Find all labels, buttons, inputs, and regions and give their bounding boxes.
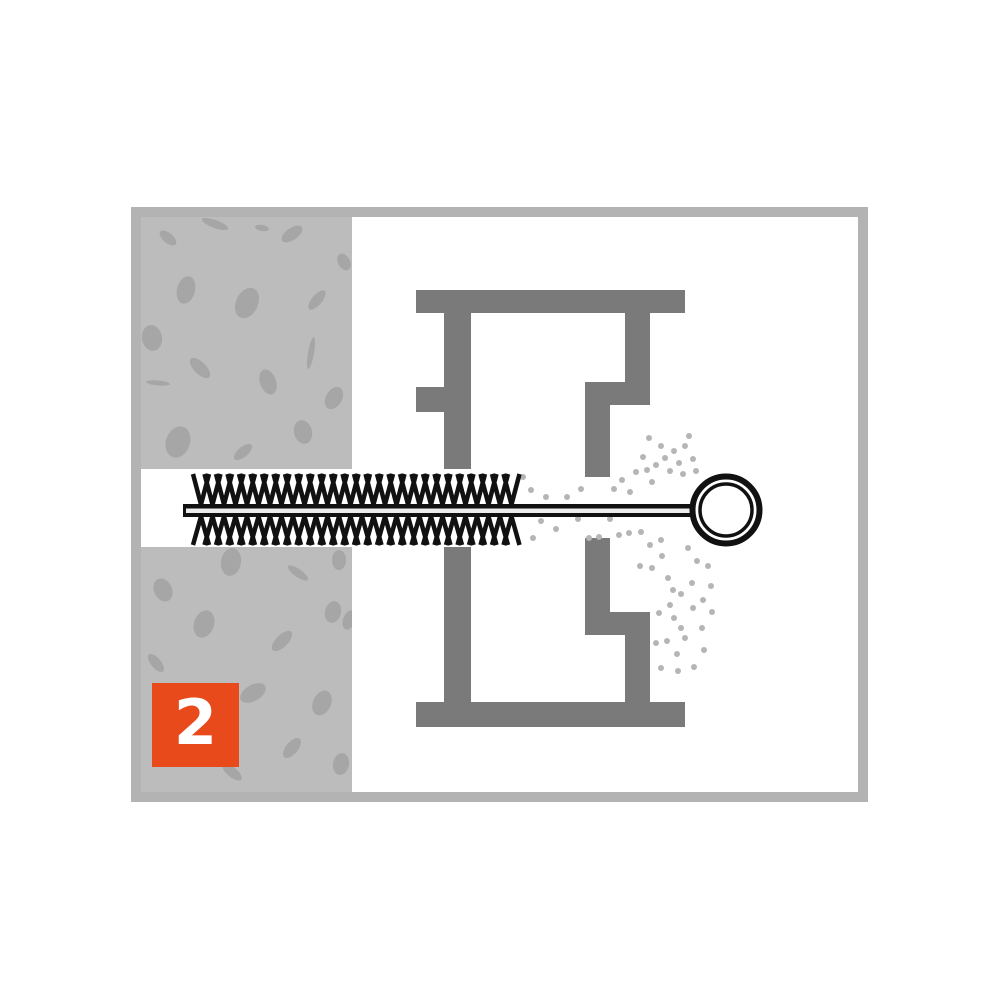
dust-dot [678,625,684,631]
dust-dot [633,469,639,475]
dust-dot [662,455,668,461]
dust-dot [656,610,662,616]
dust-dot [690,605,696,611]
dust-dot [644,467,650,473]
block-wall-segment [416,702,685,727]
dust-dot [671,448,677,454]
dust-dot [616,532,622,538]
dust-dot [647,542,653,548]
block-wall-segment [416,387,444,412]
dust-dot [538,518,544,524]
ring-outer [693,477,760,544]
dust-dot [686,433,692,439]
dust-dot [637,563,643,569]
dust-dot [611,486,617,492]
hole-cleaning-diagram [0,0,1000,1000]
dust-dot [627,489,633,495]
dust-dot [564,494,570,500]
dust-dot [709,609,715,615]
dust-dot [685,545,691,551]
dust-dot [658,443,664,449]
dust-dot [659,553,665,559]
texture-fleck [332,550,346,570]
block-wall-segment [444,313,471,469]
dust-dot [700,597,706,603]
block-wall-segment [416,290,685,313]
dust-dot [530,535,536,541]
block-wall-segment [625,612,650,702]
dust-dot [708,583,714,589]
dust-dot [682,635,688,641]
dust-dot [676,460,682,466]
dust-dot [675,668,681,674]
dust-dot [619,477,625,483]
dust-dot [653,462,659,468]
dust-dot [667,602,673,608]
dust-dot [586,535,592,541]
dust-dot [649,479,655,485]
brush-ring-handle [693,477,760,544]
dust-dot [543,494,549,500]
dust-dot [705,563,711,569]
dust-dot [680,471,686,477]
dust-dot [528,487,534,493]
dust-dot [658,665,664,671]
dust-dot [596,534,602,540]
dust-dot [653,640,659,646]
dust-dot [682,443,688,449]
dust-dot [689,580,695,586]
brush-rod-core [186,509,690,514]
instruction-step-illustration: 2 [0,0,1000,1000]
dust-dot [665,575,671,581]
dust-dot [649,565,655,571]
block-wall-segment [444,547,471,702]
dust-particles [520,433,715,674]
dust-dot [640,454,646,460]
dust-dot [553,526,559,532]
dust-dot [691,664,697,670]
step-number: 2 [174,692,217,754]
dust-dot [658,537,664,543]
dust-dot [690,456,696,462]
dust-dot [678,591,684,597]
dust-dot [667,468,673,474]
block-wall-segment [585,382,610,477]
dust-dot [626,530,632,536]
dust-dot [699,625,705,631]
dust-dot [646,435,652,441]
dust-dot [671,615,677,621]
dust-dot [664,638,670,644]
dust-dot [693,468,699,474]
dust-dot [578,486,584,492]
step-number-badge: 2 [152,683,239,767]
dust-dot [670,587,676,593]
dust-dot [638,529,644,535]
dust-dot [674,651,680,657]
dust-dot [694,558,700,564]
dust-dot [701,647,707,653]
